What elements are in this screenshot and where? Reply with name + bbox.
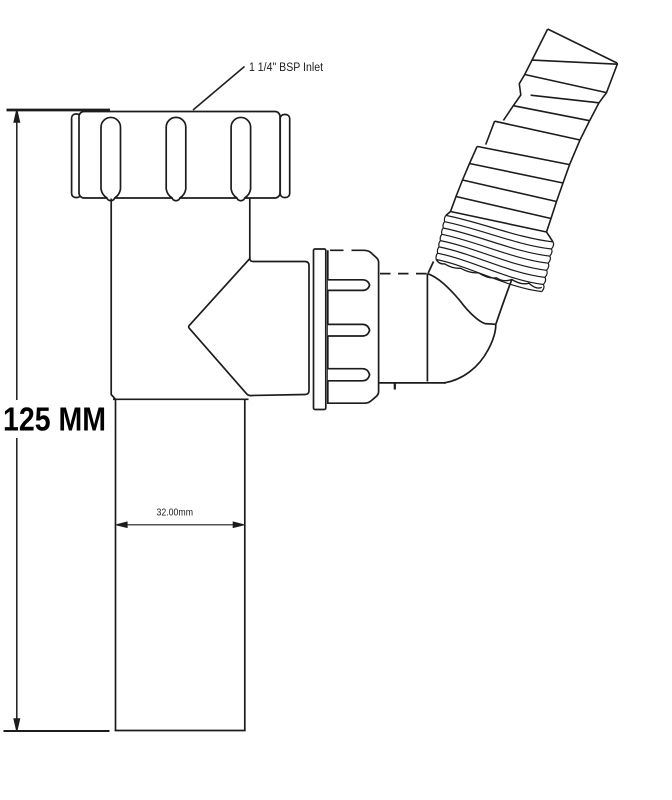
- svg-text:125 MM: 125 MM: [3, 401, 106, 438]
- svg-text:1 1/4" BSP Inlet: 1 1/4" BSP Inlet: [249, 62, 324, 74]
- svg-text:32.00mm: 32.00mm: [157, 507, 194, 519]
